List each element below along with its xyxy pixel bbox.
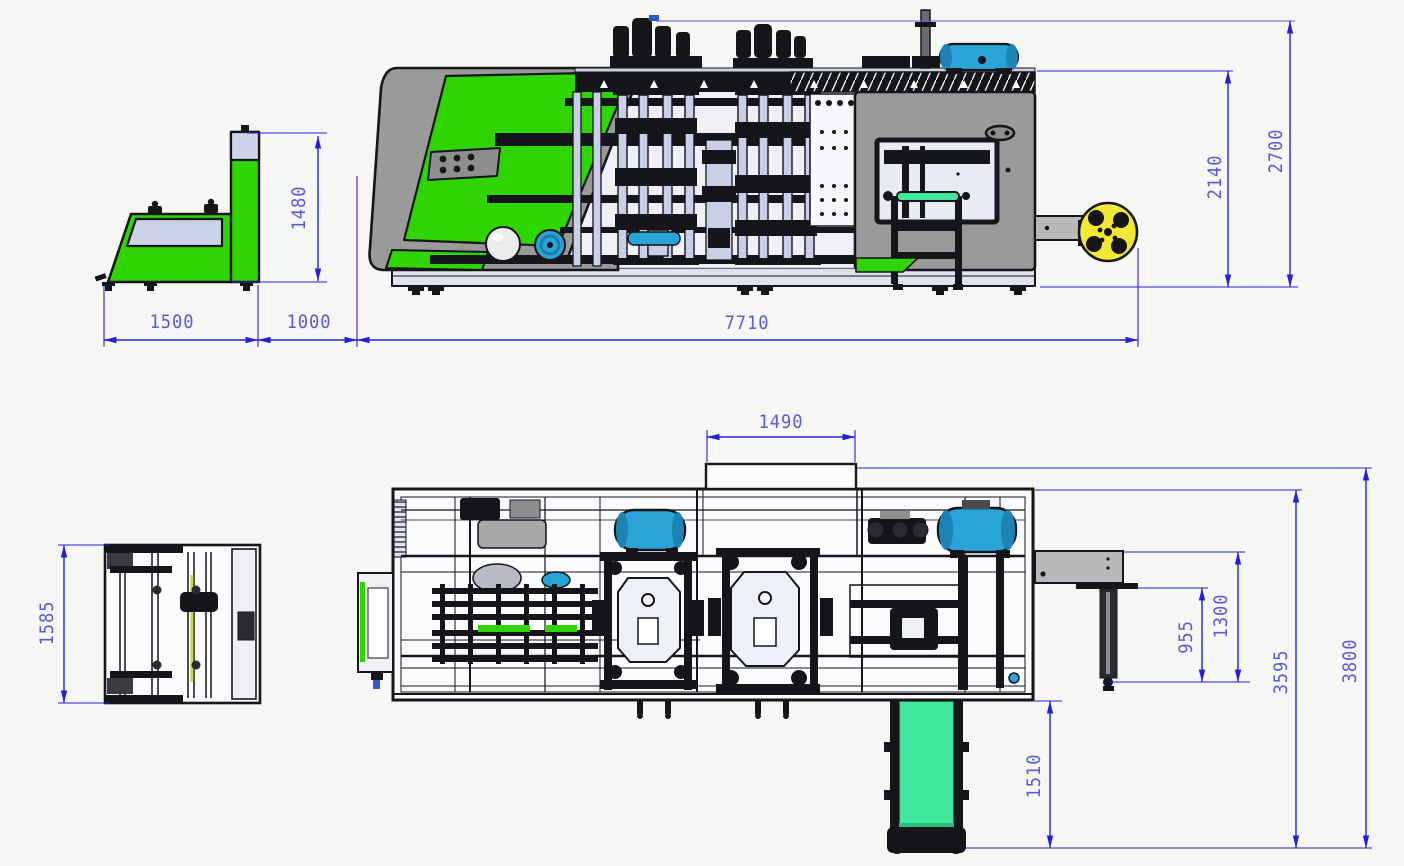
- air-tank-side: [940, 44, 1018, 74]
- dim-arm-955: 955: [1175, 620, 1197, 654]
- air-tank-plan-left: [615, 510, 685, 556]
- dim-height-2140: 2140: [1204, 155, 1226, 200]
- drawing-linework: [0, 0, 1404, 866]
- dim-width-1500: 1500: [150, 311, 195, 333]
- dim-gap-1000: 1000: [287, 311, 332, 333]
- dim-length-7710: 7710: [725, 312, 770, 334]
- stacker-conveyor: [884, 700, 969, 854]
- side-table: [1035, 551, 1138, 691]
- end-plan-view: [105, 545, 260, 703]
- dim-width-1585: 1585: [36, 601, 58, 646]
- dim-conveyor-1510: 1510: [1023, 754, 1045, 799]
- dim-table-1300: 1300: [1210, 594, 1232, 639]
- press-motors-left: [610, 15, 702, 70]
- dim-feature-1490: 1490: [759, 411, 804, 433]
- right-cabinet: [855, 92, 1035, 290]
- dim-width-3595: 3595: [1270, 650, 1292, 695]
- dim-height-1480: 1480: [288, 186, 310, 231]
- dim-height-2700: 2700: [1265, 129, 1287, 174]
- film-reel: [1035, 203, 1137, 261]
- main-plan-view: [358, 464, 1138, 854]
- press-motors-right: [733, 24, 813, 70]
- drawing-canvas: 1480 1500 1000 7710 2140 2700 1490 1585 …: [0, 0, 1404, 866]
- air-tank-plan-right: [938, 500, 1016, 558]
- end-elevation-view: [95, 125, 259, 291]
- dim-width-3800: 3800: [1339, 639, 1361, 684]
- main-side-elevation-view: [370, 10, 1137, 295]
